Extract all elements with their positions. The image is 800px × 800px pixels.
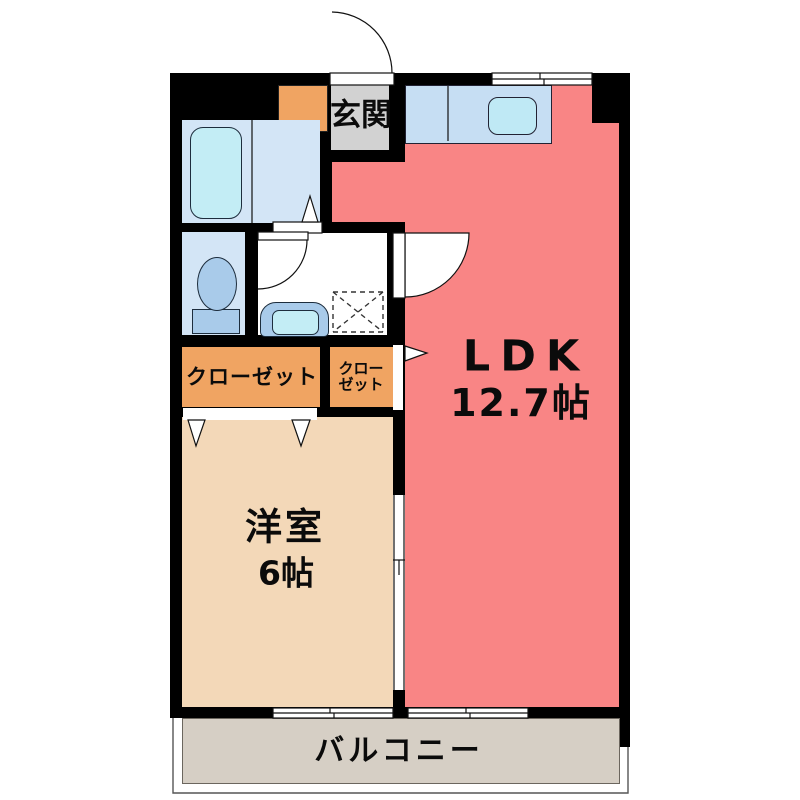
label-western-room-size: 6帖 [258,557,314,592]
wall [393,417,405,495]
toilet-tank-icon [192,309,240,334]
wall [393,690,405,718]
sliding-door [393,495,405,690]
wall [170,73,630,85]
label-closet-large: クローゼット [186,366,318,388]
label-closet-small-line2: ゼット [338,375,383,393]
floor-plan: 玄関 LDK 12.7帖 洋室 6帖 クローゼット クロー ゼット バルコニー [0,0,800,800]
toilet-bowl-icon [197,257,237,311]
kitchen-sink-icon [488,97,537,135]
wall [592,73,630,123]
label-ldk: LDK [463,334,589,379]
label-balcony: バルコニー [314,735,483,767]
wall [619,73,630,747]
closet-door-strip [183,408,317,420]
washbasin-bowl-icon [272,310,319,335]
label-western-room: 洋室 [245,509,325,548]
label-ldk-size: 12.7帖 [450,384,592,424]
closet-small-door-strip [393,345,403,410]
label-entrance: 玄関 [330,100,392,133]
wall [170,73,182,718]
label-closet-small: クロー ゼット [338,361,383,393]
bathtub-icon [190,127,242,219]
